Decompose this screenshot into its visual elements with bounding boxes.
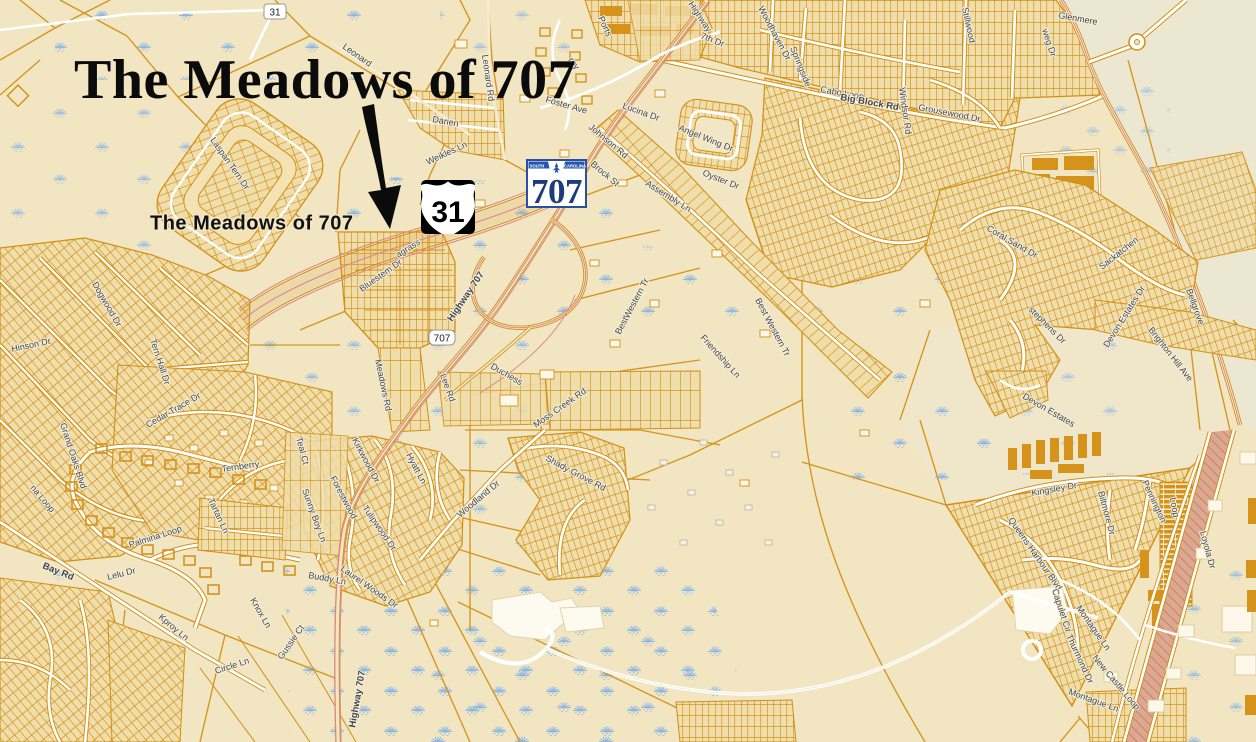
svg-text:SOUTH: SOUTH <box>530 164 545 169</box>
svg-text:707: 707 <box>531 172 582 211</box>
svg-text:The Meadows of 707: The Meadows of 707 <box>74 49 576 111</box>
svg-text:The Meadows of 707: The Meadows of 707 <box>150 213 354 235</box>
svg-text:31: 31 <box>431 196 464 229</box>
svg-text:CAROLINA: CAROLINA <box>564 164 586 169</box>
svg-text:707: 707 <box>434 334 451 345</box>
svg-text:31: 31 <box>269 8 281 19</box>
